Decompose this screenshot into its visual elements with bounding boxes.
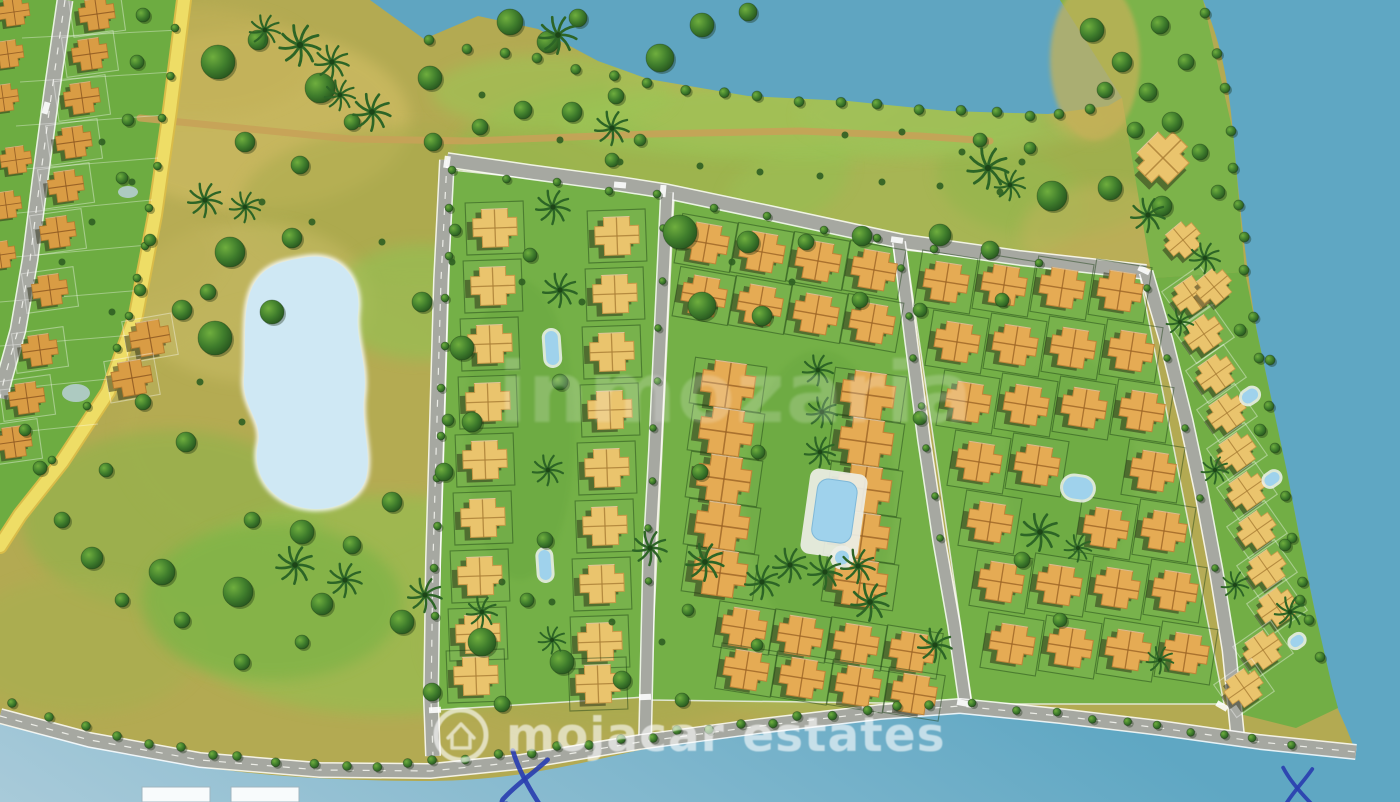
bottom-box (231, 787, 299, 802)
bottom-box (142, 787, 210, 802)
site-plan-screenshot: inmozaria mojacar estates (0, 0, 1400, 802)
site-plan-map (0, 0, 1400, 802)
